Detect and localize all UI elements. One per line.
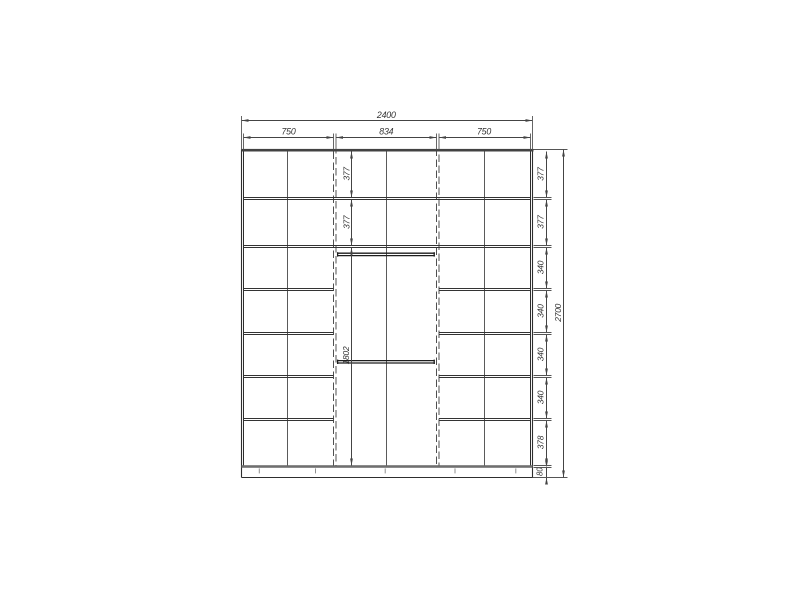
svg-text:1802: 1802 (341, 346, 351, 364)
svg-text:377: 377 (536, 215, 546, 229)
svg-text:340: 340 (536, 304, 546, 318)
svg-text:340: 340 (536, 260, 546, 274)
svg-text:80: 80 (536, 467, 545, 476)
svg-text:377: 377 (342, 167, 352, 181)
svg-text:834: 834 (379, 127, 393, 137)
svg-text:2400: 2400 (376, 110, 396, 120)
svg-text:750: 750 (477, 127, 491, 137)
svg-text:340: 340 (536, 390, 546, 404)
svg-text:340: 340 (536, 347, 546, 361)
svg-text:377: 377 (536, 167, 546, 181)
svg-text:750: 750 (281, 127, 295, 137)
svg-text:2700: 2700 (553, 303, 563, 322)
svg-text:377: 377 (342, 215, 352, 229)
svg-text:378: 378 (536, 435, 546, 449)
